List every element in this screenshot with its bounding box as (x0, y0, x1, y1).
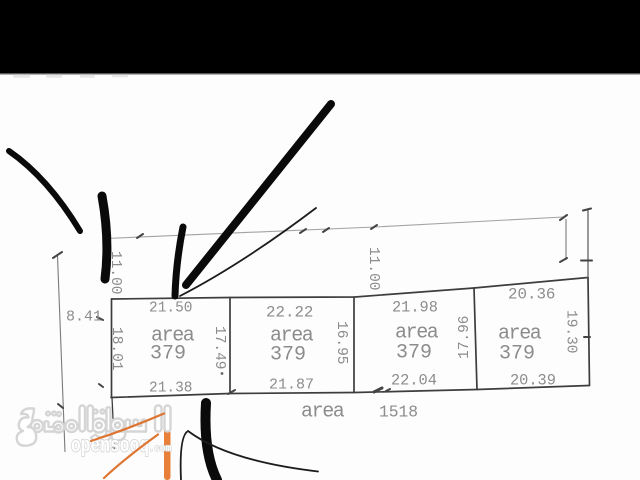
svg-text:8.41: 8.41 (66, 309, 102, 326)
svg-text:21.87: 21.87 (269, 377, 314, 394)
svg-text:379: 379 (270, 344, 306, 367)
svg-text:16.95: 16.95 (333, 321, 349, 365)
svg-text:17.49: 17.49 (211, 326, 227, 370)
svg-text:21.50: 21.50 (149, 301, 193, 317)
svg-text:20.39: 20.39 (510, 372, 556, 390)
svg-text:21.98: 21.98 (392, 299, 438, 317)
svg-text:18.01: 18.01 (108, 327, 124, 371)
svg-text:21.38: 21.38 (149, 381, 193, 397)
svg-text:379: 379 (499, 343, 535, 366)
svg-text:17.96: 17.96 (457, 315, 473, 359)
svg-text:22.04: 22.04 (391, 372, 437, 390)
svg-text:area: area (301, 401, 345, 424)
svg-text:19.30: 19.30 (563, 310, 579, 354)
svg-text:.com: .com (149, 443, 172, 455)
svg-text:1518: 1518 (379, 403, 418, 422)
svg-text:379: 379 (150, 343, 186, 366)
svg-text:379: 379 (396, 342, 432, 365)
svg-text:22.22: 22.22 (266, 304, 313, 322)
svg-text:opensooq: opensooq (71, 436, 149, 459)
svg-text:11.00: 11.00 (365, 247, 381, 291)
svg-text:20.36: 20.36 (508, 286, 555, 304)
